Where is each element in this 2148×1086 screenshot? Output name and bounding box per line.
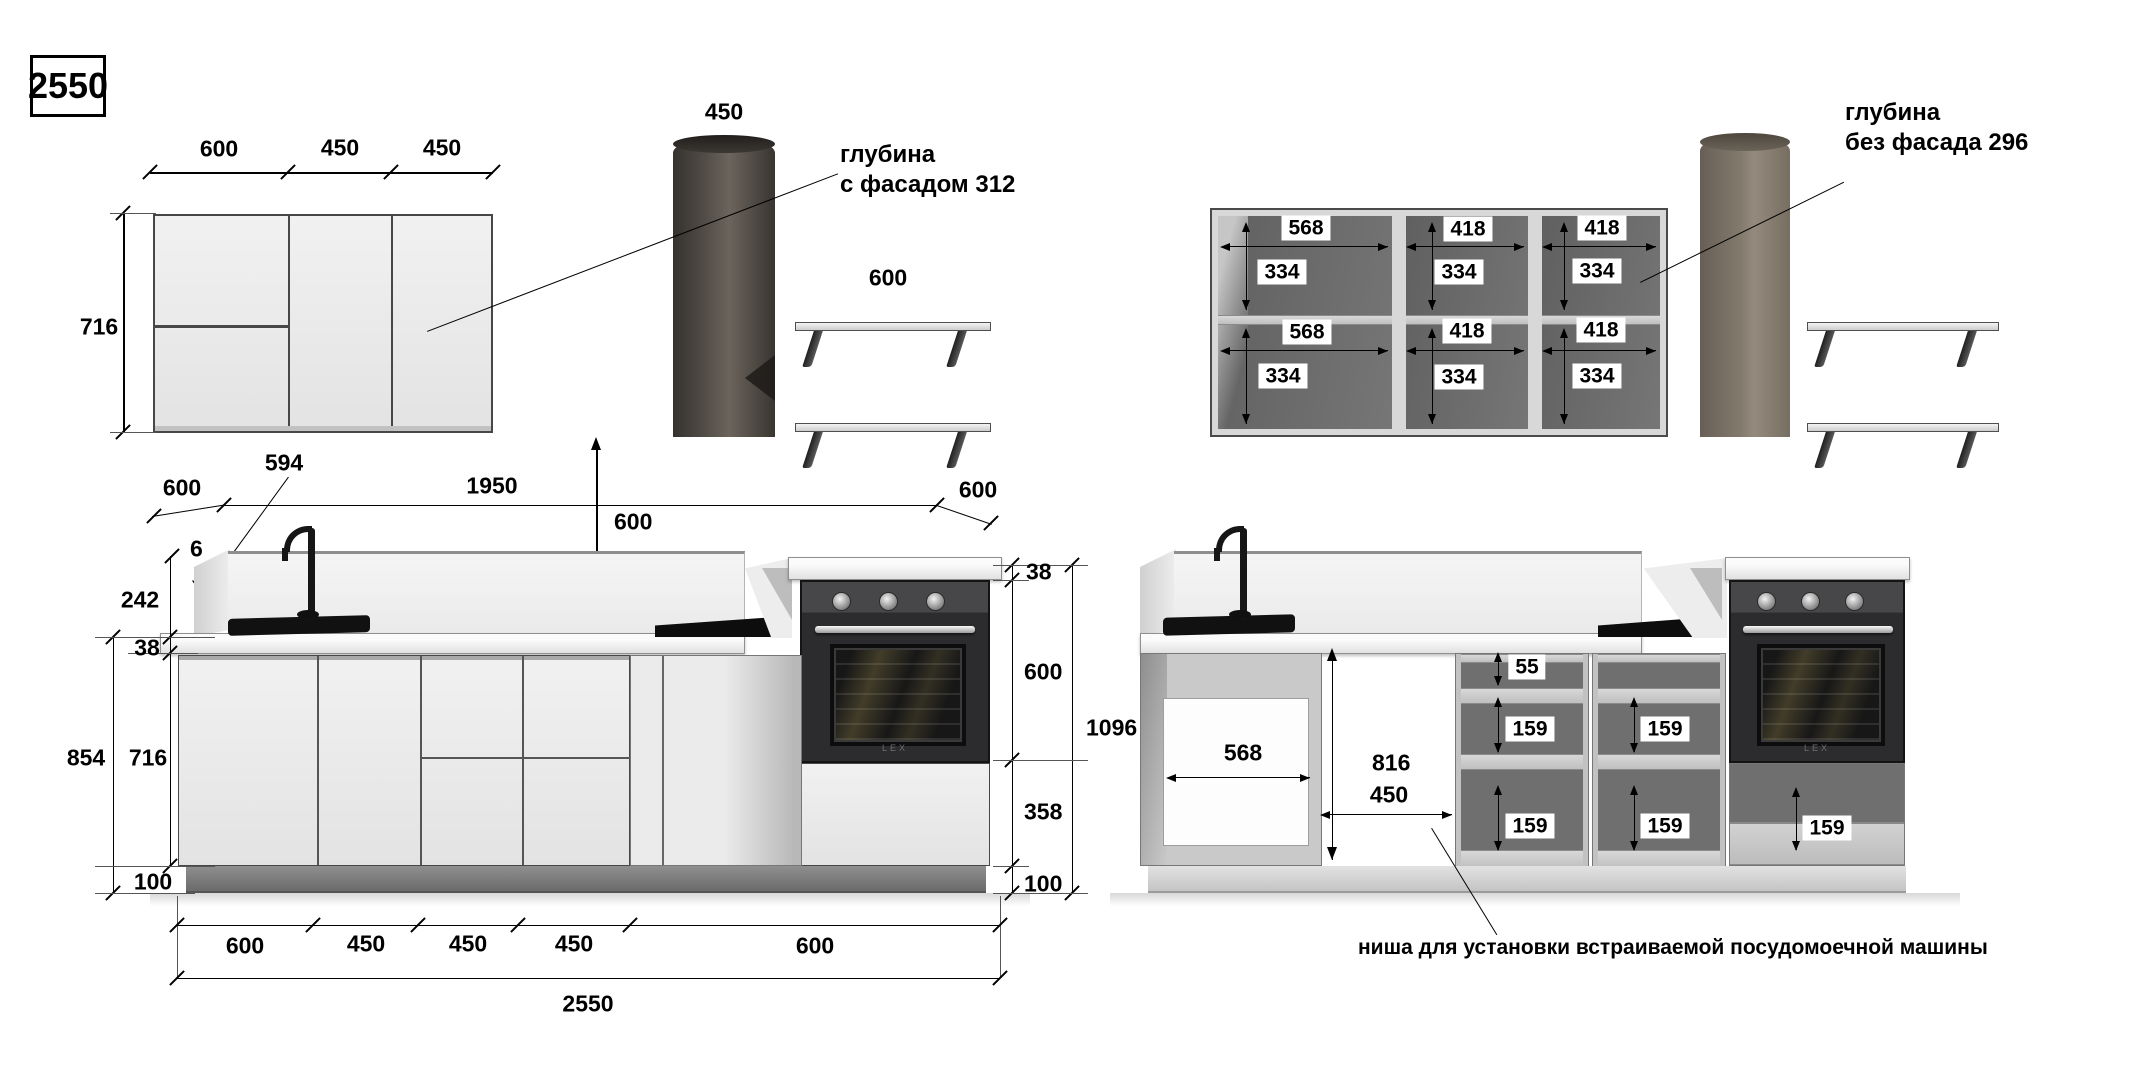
oven-brand: LEX: [802, 743, 988, 753]
floor-shadow: [1110, 893, 1960, 906]
dim-arrow: [1224, 350, 1388, 351]
arrowhead: [1378, 347, 1388, 355]
dim-label: 450: [423, 137, 461, 160]
faucet-base: [1229, 610, 1251, 619]
arrowhead: [1494, 652, 1502, 662]
wall-shelf: [1807, 322, 1999, 331]
dim-label: 334: [1572, 364, 1621, 389]
dim-label: 418: [1442, 319, 1491, 344]
oven-knob: [1845, 592, 1864, 611]
drawer-box: [1456, 688, 1588, 704]
drawer-box: [1456, 754, 1588, 770]
dim-label: 418: [1577, 216, 1626, 241]
dim-label: 334: [1257, 260, 1306, 285]
arrowhead: [1630, 841, 1638, 851]
shelf-bracket: [946, 331, 967, 367]
under-oven-drawer: [800, 763, 990, 866]
dim-arrow: [1224, 246, 1388, 247]
dim-line: [150, 172, 493, 174]
dim-arrow: [1246, 224, 1247, 310]
wall-cabinet-divider: [288, 216, 290, 431]
dim-label: 568: [1282, 320, 1331, 345]
extension-line: [1000, 896, 1001, 978]
dim-label: 450: [1370, 784, 1408, 807]
drawer-box: [1593, 688, 1725, 704]
door-divider: [522, 656, 524, 865]
arrowhead: [1792, 841, 1800, 851]
dim-label: 159: [1802, 816, 1851, 841]
dim-label: 600: [614, 511, 652, 534]
arrowhead: [1220, 243, 1230, 251]
side-rail: [1456, 654, 1461, 865]
extension-line: [993, 866, 1029, 867]
dim-label: 334: [1434, 365, 1483, 390]
dim-label: 600: [796, 935, 834, 958]
dim-arrow: [1546, 246, 1656, 247]
dim-label: 600: [869, 267, 907, 290]
dim-arrow: [1432, 330, 1433, 424]
arrowhead: [1242, 414, 1250, 424]
arrowhead: [1220, 347, 1230, 355]
under-oven-compartment: [1729, 763, 1905, 866]
oven-knob: [1757, 592, 1776, 611]
hood-cylinder: [1700, 135, 1790, 437]
shelf-bracket: [802, 432, 823, 468]
hood-cylinder: [673, 137, 775, 437]
dim-arrow: [1410, 246, 1524, 247]
dim-arrow: [1324, 814, 1452, 815]
total-width-title-box: 2550: [30, 55, 106, 117]
arrowhead: [1630, 785, 1638, 795]
arrowhead: [1327, 648, 1337, 661]
drawer-box: [1593, 754, 1725, 770]
dim-label: 716: [80, 316, 118, 339]
dim-label: 568: [1224, 742, 1262, 765]
dim-label: 450: [321, 137, 359, 160]
side-rail: [1583, 654, 1588, 865]
faucet-riser: [1240, 528, 1247, 620]
faucet-tip: [282, 548, 288, 561]
dim-label: 600: [959, 479, 997, 502]
dim-label: 600: [163, 477, 201, 500]
dim-arrow: [1546, 350, 1656, 351]
arrowhead: [1166, 774, 1176, 782]
dim-line: [222, 505, 937, 506]
wall-cabinets: [153, 214, 493, 433]
arrowhead: [1514, 243, 1524, 251]
arrowhead: [1494, 743, 1502, 753]
dim-line: [177, 925, 1000, 926]
dim-line: [123, 213, 125, 433]
arrowhead: [1428, 300, 1436, 310]
hood-cylinder-notch: [745, 355, 775, 401]
wall-cabinet-door-split: [155, 325, 288, 328]
drawer-box: [1593, 654, 1725, 663]
dim-line: [113, 637, 114, 893]
extension-line: [110, 213, 156, 214]
side-rail: [1720, 654, 1725, 865]
extension-line: [95, 866, 215, 867]
dim-label: 600: [1024, 661, 1062, 684]
shelf-bracket: [802, 331, 823, 367]
dim-arrow: [1246, 330, 1247, 424]
arrowhead: [1646, 243, 1656, 251]
dim-tick: [164, 548, 180, 564]
dim-arrow: [1564, 330, 1565, 424]
extension-line: [177, 896, 178, 978]
dim-arrow: [1432, 224, 1433, 310]
extension-line: [993, 580, 1029, 581]
arrowhead: [1428, 222, 1436, 232]
arrowhead: [1646, 347, 1656, 355]
backsplash-end: [194, 549, 230, 639]
oven-brand: LEX: [1731, 743, 1903, 753]
plinth: [1148, 866, 1906, 893]
shelf-bracket: [946, 432, 967, 468]
oven-window: [830, 644, 966, 746]
arrowhead: [1428, 414, 1436, 424]
dim-label: 38: [134, 637, 160, 660]
dim-label: 450: [347, 933, 385, 956]
arrowhead: [1320, 811, 1330, 819]
cooktop-cabinet-front: [630, 655, 802, 866]
arrowhead: [1630, 697, 1638, 707]
dim-label: 418: [1443, 217, 1492, 242]
arrowhead: [1542, 243, 1552, 251]
arrowhead: [1560, 222, 1568, 232]
kitchen-drawing: 2550 600 450 450 716 450: [0, 0, 2148, 1086]
hood-cylinder-top: [673, 135, 775, 153]
extension-line: [993, 760, 1088, 761]
floor-shadow: [150, 893, 1030, 906]
dim-label: 600: [226, 935, 264, 958]
arrowhead: [1428, 328, 1436, 338]
arrowhead: [1560, 328, 1568, 338]
dim-label: 334: [1434, 260, 1483, 285]
wall-cabinet-divider: [391, 216, 393, 431]
dim-arrow: [1170, 777, 1310, 778]
dim-label: 450: [705, 101, 743, 124]
wall-cabinet-bottom-edge: [155, 426, 491, 431]
dim-line: [937, 505, 992, 525]
oven: LEX: [1729, 580, 1905, 763]
door-divider: [317, 656, 319, 865]
shelf-bracket: [1956, 432, 1977, 468]
arrowhead: [1494, 676, 1502, 686]
base-cabinets: [178, 655, 630, 866]
arrowhead: [1630, 743, 1638, 753]
dim-line: [177, 978, 1000, 979]
oven-knob: [879, 592, 898, 611]
front-top-shadow: [179, 656, 629, 660]
dim-label: 242: [121, 589, 159, 612]
dim-label: 568: [1281, 216, 1330, 241]
oven-handle: [815, 626, 975, 633]
worktop: [1140, 633, 1642, 654]
oven-housing-top: [1725, 557, 1910, 580]
drawer-split: [422, 757, 631, 759]
extension-line: [110, 432, 156, 433]
dim-label: 1096: [1086, 717, 1137, 740]
arrowhead: [1494, 697, 1502, 707]
arrowhead: [1542, 347, 1552, 355]
arrowhead: [1494, 785, 1502, 795]
oven-housing-top: [788, 557, 1002, 580]
wall-shelf: [795, 423, 991, 432]
door-divider: [662, 656, 664, 865]
side-rail: [1593, 654, 1598, 865]
wall-shelf: [1807, 423, 1999, 432]
hood-cylinder-top: [1700, 133, 1790, 151]
dishwasher-note: ниша для установки встраиваемой посудомо…: [1358, 936, 1988, 960]
faucet-base: [297, 610, 319, 619]
arrowhead: [1494, 841, 1502, 851]
dim-tick: [146, 508, 162, 524]
dim-label: 334: [1572, 259, 1621, 284]
dim-label: 100: [1024, 873, 1062, 896]
oven-knob: [832, 592, 851, 611]
dim-label: 159: [1640, 814, 1689, 839]
dim-label: 100: [134, 871, 172, 894]
arrowhead: [1406, 347, 1416, 355]
dim-label: 1950: [466, 475, 517, 498]
dim-label: 418: [1576, 318, 1625, 343]
door-divider: [420, 656, 422, 865]
arrowhead: [1442, 811, 1452, 819]
dim-label: 334: [1258, 364, 1307, 389]
dim-label: 854: [67, 747, 105, 770]
dim-line: [170, 556, 171, 866]
oven-handle: [1743, 626, 1893, 633]
plinth: [186, 866, 986, 893]
arrowhead: [1514, 347, 1524, 355]
shelf-bracket: [1814, 331, 1835, 367]
oven-knob: [926, 592, 945, 611]
dim-line: [1012, 565, 1013, 893]
dim-label: 159: [1505, 814, 1554, 839]
cabinet-open-niche: [1163, 698, 1309, 846]
dim-label: 450: [449, 933, 487, 956]
shelf-bracket: [1956, 331, 1977, 367]
arrowhead: [1560, 300, 1568, 310]
dim-label: 716: [129, 747, 167, 770]
dim-label: 6: [190, 538, 203, 561]
dim-label: 38: [1026, 561, 1052, 584]
dim-label: 2550: [562, 993, 613, 1016]
oven-knob: [1801, 592, 1820, 611]
dim-label: 159: [1640, 717, 1689, 742]
dim-line: [152, 504, 225, 517]
arrowhead: [1378, 243, 1388, 251]
dim-label: 159: [1505, 717, 1554, 742]
dim-label: 594: [265, 452, 303, 475]
dim-label: 450: [555, 933, 593, 956]
shelf-bracket: [1814, 432, 1835, 468]
arrowhead: [1560, 414, 1568, 424]
oven-window: [1757, 644, 1885, 746]
arrowhead: [1242, 300, 1250, 310]
arrowhead: [591, 437, 601, 450]
depth-without-facade-note: глубина без фасада 296: [1845, 98, 2125, 158]
dim-arrow: [1332, 652, 1333, 860]
total-width-title: 2550: [28, 65, 108, 107]
arrowhead: [1327, 847, 1337, 860]
dim-label: 55: [1508, 655, 1545, 680]
dim-arrow: [1410, 350, 1524, 351]
arrowhead: [1242, 222, 1250, 232]
dim-arrow: [1564, 224, 1565, 310]
wall-shelf: [795, 322, 991, 331]
arrowhead: [1406, 243, 1416, 251]
dim-line: [1072, 565, 1073, 893]
arrowhead: [1242, 328, 1250, 338]
depth-with-facade-note: глубина с фасадом 312: [840, 140, 1070, 200]
dim-label: 816: [1372, 752, 1410, 775]
faucet-tip: [1214, 548, 1220, 561]
arrowhead: [1792, 787, 1800, 797]
sink: [1163, 614, 1295, 635]
arrowhead: [1300, 774, 1310, 782]
faucet-riser: [308, 528, 315, 620]
oven: LEX: [800, 580, 990, 763]
dim-label: 600: [200, 138, 238, 161]
dim-label: 358: [1024, 801, 1062, 824]
